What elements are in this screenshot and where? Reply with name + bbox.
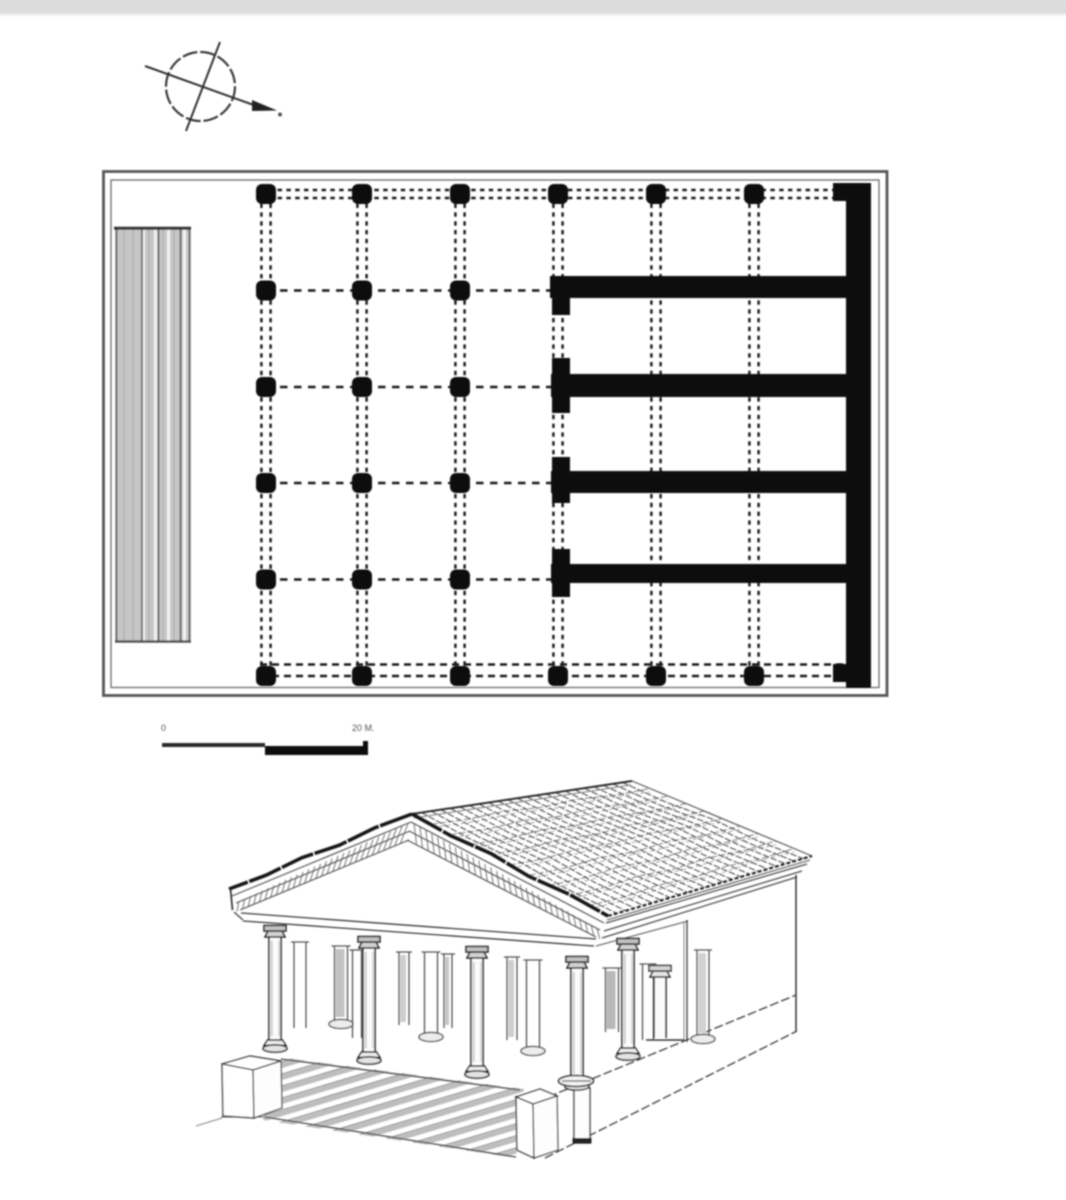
svg-text:0: 0 <box>161 723 166 733</box>
svg-text:20 M.: 20 M. <box>352 723 375 733</box>
